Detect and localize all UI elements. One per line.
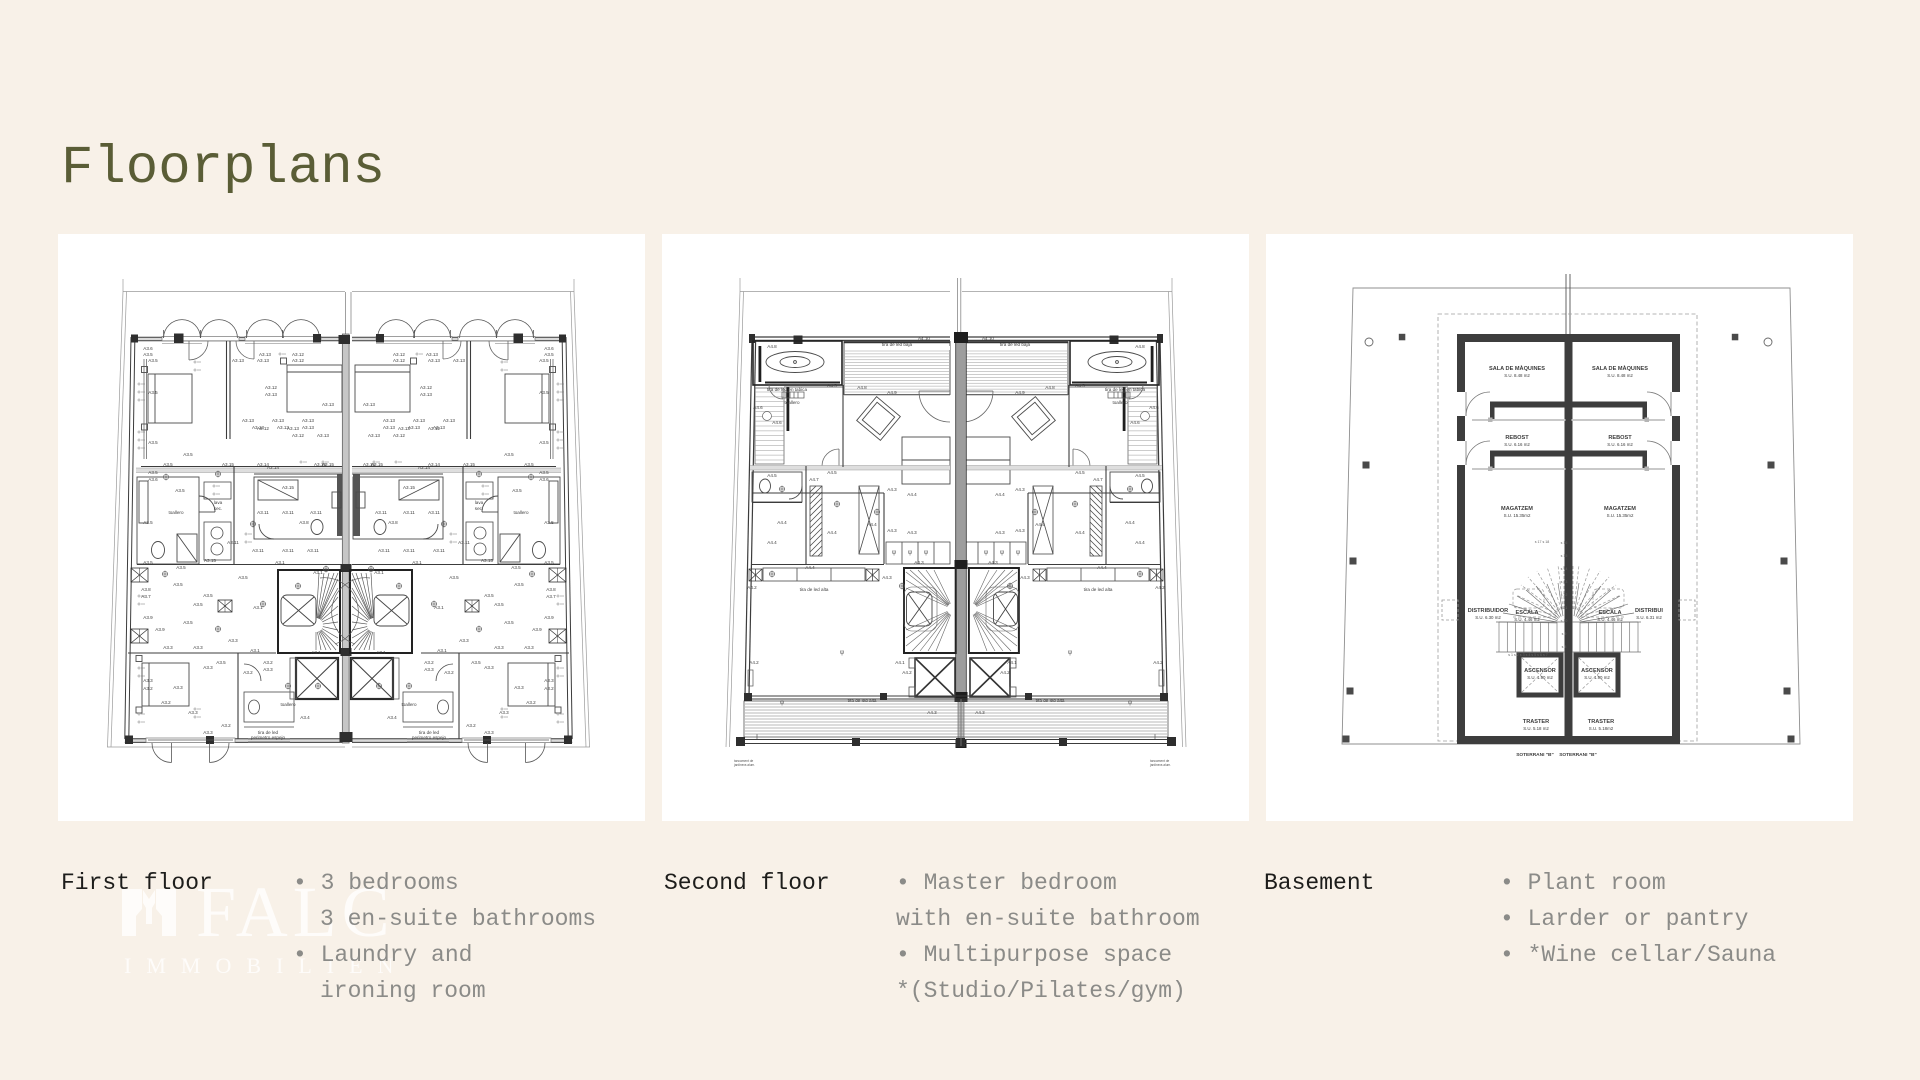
svg-text:A3.15: A3.15	[481, 558, 493, 563]
svg-text:A4.2: A4.2	[747, 585, 757, 590]
svg-text:A3.5: A3.5	[504, 452, 514, 457]
svg-text:A3.5: A3.5	[238, 575, 248, 580]
svg-text:S.U. 1.90 m2: S.U. 1.90 m2	[1584, 675, 1610, 680]
svg-text:A3.5: A3.5	[544, 560, 554, 565]
svg-text:SOTERRANI "B": SOTERRANI "B"	[1559, 752, 1597, 758]
svg-text:A3.5: A3.5	[539, 390, 549, 395]
svg-text:A3.11: A3.11	[403, 548, 415, 553]
svg-text:A3.11: A3.11	[378, 548, 390, 553]
svg-text:MAGATZEM: MAGATZEM	[1501, 506, 1533, 512]
svg-text:S.U. 4.46 m2: S.U. 4.46 m2	[1514, 617, 1540, 622]
svg-text:A3.3: A3.3	[524, 645, 534, 650]
svg-text:A3.1: A3.1	[374, 570, 384, 575]
svg-text:A3.13: A3.13	[287, 426, 299, 431]
svg-text:ψ: ψ	[780, 700, 784, 706]
svg-text:A4.3: A4.3	[975, 710, 985, 715]
svg-text:A3.7: A3.7	[141, 594, 151, 599]
svg-text:A4.4: A4.4	[777, 520, 787, 525]
svg-text:toallero: toallero	[168, 510, 184, 515]
svg-text:s 17 s 18: s 17 s 18	[1535, 540, 1550, 544]
svg-text:A3.3: A3.3	[499, 710, 509, 715]
svg-text:A3.13: A3.13	[428, 358, 440, 363]
svg-text:A3.14: A3.14	[428, 462, 440, 467]
svg-text:A4.5: A4.5	[827, 383, 837, 388]
svg-text:DISTRIBUIDOR: DISTRIBUIDOR	[1468, 608, 1508, 614]
svg-text:A3.13: A3.13	[317, 433, 329, 438]
svg-text:A3.3: A3.3	[193, 645, 203, 650]
svg-text:A3.5: A3.5	[512, 488, 522, 493]
svg-text:A3.5: A3.5	[544, 520, 554, 525]
svg-text:A3.5: A3.5	[143, 352, 153, 357]
svg-text:A3.5: A3.5	[183, 452, 193, 457]
svg-text:A3.2: A3.2	[526, 700, 536, 705]
svg-text:ESCALA: ESCALA	[1516, 610, 1539, 616]
svg-text:A4.4: A4.4	[1097, 565, 1107, 570]
svg-text:A3.13: A3.13	[232, 358, 244, 363]
svg-text:A3.2: A3.2	[544, 686, 554, 691]
svg-text:A3.8: A3.8	[299, 520, 309, 525]
svg-text:A4.1: A4.1	[1007, 660, 1017, 665]
svg-text:A3.11: A3.11	[458, 540, 470, 545]
svg-text:A3.11: A3.11	[252, 548, 264, 553]
svg-text:A3.13: A3.13	[242, 418, 254, 423]
svg-text:s 12: s 12	[1561, 593, 1568, 597]
svg-text:A3.11: A3.11	[227, 540, 239, 545]
svg-text:S.U. 6.16 m2: S.U. 6.16 m2	[1607, 442, 1633, 447]
svg-text:A3.3: A3.3	[143, 678, 153, 683]
svg-text:S.U. 8.48 m2: S.U. 8.48 m2	[1607, 373, 1633, 378]
svg-text:toallero: toallero	[1112, 400, 1128, 405]
svg-text:A4.3: A4.3	[887, 528, 897, 533]
svg-text:A4.6: A4.6	[1149, 405, 1159, 410]
svg-text:A4.4: A4.4	[867, 522, 877, 527]
svg-text:A3.2: A3.2	[243, 670, 253, 675]
svg-text:jardinera alum.: jardinera alum.	[733, 763, 755, 767]
svg-text:A3.5: A3.5	[148, 470, 158, 475]
svg-text:A3.5: A3.5	[163, 462, 173, 467]
svg-text:A3.5: A3.5	[183, 620, 193, 625]
svg-text:S.U. 15.35m2: S.U. 15.35m2	[1607, 513, 1634, 518]
svg-text:A3.15: A3.15	[314, 462, 326, 467]
svg-text:MAGATZEM: MAGATZEM	[1604, 506, 1636, 512]
svg-text:lava: lava	[475, 500, 484, 505]
svg-text:A3.11: A3.11	[403, 510, 415, 515]
svg-text:A3.11: A3.11	[282, 510, 294, 515]
svg-text:s 14: s 14	[1561, 567, 1568, 571]
svg-text:A4.4: A4.4	[1075, 530, 1085, 535]
svg-text:A3.5: A3.5	[176, 565, 186, 570]
svg-text:A3.13: A3.13	[398, 426, 410, 431]
svg-text:A3.7: A3.7	[546, 594, 556, 599]
svg-text:A3.5: A3.5	[193, 602, 203, 607]
svg-text:A3.5: A3.5	[504, 620, 514, 625]
svg-text:tira de led alta: tira de led alta	[848, 698, 877, 703]
svg-text:A4.3: A4.3	[882, 575, 892, 580]
svg-text:A3.2: A3.2	[444, 670, 454, 675]
svg-text:A3.8: A3.8	[546, 587, 556, 592]
svg-text:sec.: sec.	[475, 506, 483, 511]
svg-text:A3.12: A3.12	[292, 358, 304, 363]
svg-text:A3.1: A3.1	[253, 605, 263, 610]
svg-text:toallero: toallero	[784, 400, 800, 405]
svg-text:A3.11: A3.11	[307, 548, 319, 553]
svg-text:A4.1: A4.1	[895, 660, 905, 665]
svg-text:A3.13: A3.13	[259, 352, 271, 357]
svg-text:s 1 s 2 s 3 s 4 s 5 s 6 s 7: s 1 s 2 s 3 s 4 s 5 s 6 s 7	[1508, 653, 1548, 657]
svg-text:toallero: toallero	[280, 702, 296, 707]
svg-text:A3.5: A3.5	[216, 660, 226, 665]
svg-text:A4.2: A4.2	[1155, 585, 1165, 590]
svg-text:A3.8: A3.8	[388, 520, 398, 525]
svg-text:A4.5: A4.5	[827, 470, 837, 475]
svg-text:perimetro espejo: perimetro espejo	[412, 735, 447, 740]
svg-text:tira de led baja: tira de led baja	[1000, 342, 1031, 347]
svg-text:A3.6: A3.6	[143, 346, 153, 351]
svg-text:A4.10: A4.10	[982, 336, 994, 341]
svg-text:A3.13: A3.13	[322, 402, 334, 407]
svg-text:A3.3: A3.3	[173, 685, 183, 690]
svg-text:S.U. 5.18 m2: S.U. 5.18 m2	[1523, 726, 1549, 731]
svg-text:A3.2: A3.2	[466, 723, 476, 728]
svg-text:A3.2: A3.2	[221, 723, 231, 728]
svg-text:S.U. 6.31 m2: S.U. 6.31 m2	[1636, 615, 1662, 620]
svg-text:tira de led alta: tira de led alta	[1084, 587, 1113, 592]
svg-text:A4.9: A4.9	[1015, 390, 1025, 395]
svg-text:perimetro espejo: perimetro espejo	[251, 735, 286, 740]
svg-text:A3.5: A3.5	[524, 462, 534, 467]
svg-text:S.U. 4.46 m2: S.U. 4.46 m2	[1597, 617, 1623, 622]
svg-text:A3.5: A3.5	[484, 593, 494, 598]
svg-text:A3.13: A3.13	[302, 425, 314, 430]
svg-text:A3.15: A3.15	[282, 485, 294, 490]
svg-text:ψ: ψ	[908, 550, 912, 556]
svg-text:A4.5: A4.5	[1075, 383, 1085, 388]
svg-text:A3.15: A3.15	[463, 462, 475, 467]
svg-text:A3.15: A3.15	[222, 462, 234, 467]
svg-text:A3.5: A3.5	[203, 593, 213, 598]
svg-text:A3.3: A3.3	[514, 685, 524, 690]
svg-text:A4.4: A4.4	[767, 540, 777, 545]
svg-text:SOTERRANI "B": SOTERRANI "B"	[1516, 752, 1554, 758]
svg-text:A4.4: A4.4	[907, 492, 917, 497]
svg-text:tira de led en tabica: tira de led en tabica	[1105, 387, 1146, 392]
svg-text:A4.4: A4.4	[827, 530, 837, 535]
svg-text:A3.13: A3.13	[272, 418, 284, 423]
svg-text:A4.8: A4.8	[1135, 344, 1145, 349]
svg-text:A3.1: A3.1	[412, 560, 422, 565]
svg-text:tira de led alta: tira de led alta	[800, 587, 829, 592]
svg-text:A3.11: A3.11	[257, 510, 269, 515]
svg-text:A4.2: A4.2	[1153, 660, 1163, 665]
svg-text:A4.7: A4.7	[809, 477, 819, 482]
svg-text:A3.5: A3.5	[148, 390, 158, 395]
svg-text:A3.8: A3.8	[141, 587, 151, 592]
svg-text:A3.2: A3.2	[143, 686, 153, 691]
svg-text:ψ: ψ	[1068, 650, 1072, 656]
svg-text:A3.13: A3.13	[383, 425, 395, 430]
svg-text:A3.11: A3.11	[428, 510, 440, 515]
svg-text:A3.1: A3.1	[275, 560, 285, 565]
svg-text:A3.13: A3.13	[420, 392, 432, 397]
svg-text:ASCENSOR: ASCENSOR	[1524, 668, 1556, 674]
svg-text:A4.2: A4.2	[1000, 670, 1010, 675]
svg-text:A3.1: A3.1	[313, 570, 323, 575]
svg-text:A3.11: A3.11	[375, 510, 387, 515]
svg-text:s 10: s 10	[1561, 619, 1568, 623]
svg-text:TRASTER: TRASTER	[1523, 719, 1549, 725]
svg-text:REBOST: REBOST	[1608, 435, 1632, 441]
svg-text:A3.5: A3.5	[511, 565, 521, 570]
svg-text:A3.13: A3.13	[368, 433, 380, 438]
svg-text:A3.1: A3.1	[376, 650, 386, 655]
svg-text:s 9: s 9	[1562, 632, 1567, 636]
svg-text:A3.3: A3.3	[163, 645, 173, 650]
svg-text:A3.12: A3.12	[393, 358, 405, 363]
svg-text:A4.3: A4.3	[1015, 528, 1025, 533]
svg-text:A4.4: A4.4	[1035, 522, 1045, 527]
svg-text:SALA DE MÀQUINES: SALA DE MÀQUINES	[1592, 365, 1648, 372]
svg-text:A3.11: A3.11	[310, 510, 322, 515]
svg-text:A3.12: A3.12	[292, 352, 304, 357]
svg-text:A3.13: A3.13	[383, 418, 395, 423]
svg-text:A4.6: A4.6	[772, 420, 782, 425]
svg-text:A3.5: A3.5	[494, 602, 504, 607]
svg-text:REBOST: REBOST	[1505, 435, 1529, 441]
svg-text:A4.3: A4.3	[887, 487, 897, 492]
svg-text:A3.3: A3.3	[424, 667, 434, 672]
svg-text:A3.5: A3.5	[148, 358, 158, 363]
svg-text:A3.5: A3.5	[173, 582, 183, 587]
svg-text:A3.5: A3.5	[175, 488, 185, 493]
svg-text:A3.13: A3.13	[426, 352, 438, 357]
svg-text:A4.2: A4.2	[902, 670, 912, 675]
svg-text:A3.13: A3.13	[302, 418, 314, 423]
svg-text:A3.5: A3.5	[148, 440, 158, 445]
svg-text:A3.6: A3.6	[544, 346, 554, 351]
svg-text:A3.15: A3.15	[403, 485, 415, 490]
svg-text:A3.14: A3.14	[257, 462, 269, 467]
svg-text:A3.13: A3.13	[453, 358, 465, 363]
svg-text:A3.11: A3.11	[433, 548, 445, 553]
svg-text:A3.3: A3.3	[494, 645, 504, 650]
svg-text:A3.3: A3.3	[484, 665, 494, 670]
svg-text:A3.9: A3.9	[544, 615, 554, 620]
svg-text:ψ: ψ	[840, 650, 844, 656]
svg-text:A4.3: A4.3	[988, 560, 998, 565]
svg-text:tira de led en tabica: tira de led en tabica	[767, 387, 808, 392]
svg-text:A3.3: A3.3	[188, 710, 198, 715]
svg-text:ESCALA: ESCALA	[1599, 610, 1622, 616]
svg-text:ψ: ψ	[1016, 550, 1020, 556]
svg-text:A3.1: A3.1	[437, 648, 447, 653]
svg-text:s 15: s 15	[1561, 554, 1568, 558]
svg-text:toallero: toallero	[401, 702, 417, 707]
svg-text:A3.6: A3.6	[148, 477, 158, 482]
svg-text:s 13: s 13	[1561, 580, 1568, 584]
svg-text:tira de led alta: tira de led alta	[1036, 698, 1065, 703]
svg-text:A3.4: A3.4	[387, 715, 397, 720]
svg-text:A3.5: A3.5	[449, 575, 459, 580]
svg-text:A4.5: A4.5	[1075, 470, 1085, 475]
svg-text:S.U. 6.16 m2: S.U. 6.16 m2	[1504, 442, 1530, 447]
svg-text:A3.1: A3.1	[250, 648, 260, 653]
svg-text:A3.1: A3.1	[311, 650, 321, 655]
svg-text:ASCENSOR: ASCENSOR	[1581, 668, 1613, 674]
svg-text:A3.2: A3.2	[161, 700, 171, 705]
svg-text:A3.13: A3.13	[363, 402, 375, 407]
svg-text:A3.3: A3.3	[263, 667, 273, 672]
svg-text:A3.5: A3.5	[143, 520, 153, 525]
svg-text:A3.5: A3.5	[544, 352, 554, 357]
svg-text:s 16: s 16	[1561, 541, 1568, 545]
svg-text:A3.4: A3.4	[300, 715, 310, 720]
svg-text:A3.3: A3.3	[544, 678, 554, 683]
svg-text:s 11: s 11	[1561, 606, 1568, 610]
svg-text:A3.12: A3.12	[393, 433, 405, 438]
svg-text:A4.3: A4.3	[914, 560, 924, 565]
svg-text:A3.12: A3.12	[420, 385, 432, 390]
svg-text:ψ: ψ	[1000, 550, 1004, 556]
svg-text:jardinera alum.: jardinera alum.	[1149, 763, 1171, 767]
svg-text:A3.5: A3.5	[471, 660, 481, 665]
svg-text:A4.5: A4.5	[1135, 473, 1145, 478]
svg-text:S.U. 8.48 m2: S.U. 8.48 m2	[1504, 373, 1530, 378]
svg-text:A4.9: A4.9	[887, 390, 897, 395]
svg-text:A3.9: A3.9	[143, 615, 153, 620]
svg-text:S.U. 1.90 m2: S.U. 1.90 m2	[1527, 675, 1553, 680]
svg-text:A3.12: A3.12	[265, 385, 277, 390]
svg-text:A3.12: A3.12	[257, 426, 269, 431]
svg-text:TRASTER: TRASTER	[1588, 719, 1614, 725]
svg-text:tira de led baja: tira de led baja	[882, 342, 913, 347]
svg-text:sec.: sec.	[214, 506, 222, 511]
svg-text:A4.8: A4.8	[767, 344, 777, 349]
svg-text:A3.3: A3.3	[459, 638, 469, 643]
svg-text:A3.6: A3.6	[539, 477, 549, 482]
svg-text:S.U. 5.18m2: S.U. 5.18m2	[1589, 726, 1614, 731]
svg-text:A3.2: A3.2	[263, 660, 273, 665]
svg-text:A3.11: A3.11	[282, 548, 294, 553]
svg-text:A3.5: A3.5	[539, 440, 549, 445]
svg-text:A4.3: A4.3	[927, 710, 937, 715]
svg-text:A4.3: A4.3	[1020, 575, 1030, 580]
svg-text:A3.5: A3.5	[539, 358, 549, 363]
svg-text:toallero: toallero	[513, 510, 529, 515]
svg-text:A3.2: A3.2	[424, 660, 434, 665]
svg-text:A4.3: A4.3	[1015, 487, 1025, 492]
svg-text:S.U. 15.35m2: S.U. 15.35m2	[1504, 513, 1531, 518]
svg-text:A3.3: A3.3	[203, 730, 213, 735]
svg-text:A3.12: A3.12	[428, 426, 440, 431]
svg-text:A4.4: A4.4	[1125, 520, 1135, 525]
svg-text:A4.8: A4.8	[1045, 385, 1055, 390]
svg-text:A3.13: A3.13	[413, 418, 425, 423]
svg-text:A3.9: A3.9	[155, 627, 165, 632]
svg-text:A3.3: A3.3	[203, 665, 213, 670]
svg-text:A3.9: A3.9	[532, 627, 542, 632]
svg-text:A4.4: A4.4	[1135, 540, 1145, 545]
svg-text:A3.15: A3.15	[204, 558, 216, 563]
svg-text:A4.8: A4.8	[857, 385, 867, 390]
svg-text:S.U. 6.30 m2: S.U. 6.30 m2	[1475, 615, 1501, 620]
svg-text:A3.5: A3.5	[514, 582, 524, 587]
svg-text:A3.3: A3.3	[484, 730, 494, 735]
svg-text:A3.15: A3.15	[371, 462, 383, 467]
svg-text:SALA DE MÀQUINES: SALA DE MÀQUINES	[1489, 365, 1545, 372]
svg-text:A4.3: A4.3	[907, 530, 917, 535]
svg-text:lava: lava	[214, 500, 223, 505]
svg-text:A4.2: A4.2	[749, 660, 759, 665]
svg-text:A4.6: A4.6	[1130, 420, 1140, 425]
svg-text:A4.4: A4.4	[995, 492, 1005, 497]
svg-text:A3.13: A3.13	[265, 392, 277, 397]
svg-text:A4.7: A4.7	[1093, 477, 1103, 482]
svg-text:ψ: ψ	[924, 550, 928, 556]
svg-text:A3.13: A3.13	[257, 358, 269, 363]
svg-text:A3.12: A3.12	[393, 352, 405, 357]
svg-text:A3.5: A3.5	[143, 560, 153, 565]
svg-text:A4.3: A4.3	[995, 530, 1005, 535]
svg-text:ψ: ψ	[984, 550, 988, 556]
svg-text:A4.10: A4.10	[918, 336, 930, 341]
svg-text:A4.6: A4.6	[753, 405, 763, 410]
svg-text:A3.5: A3.5	[539, 470, 549, 475]
svg-text:A4.5: A4.5	[767, 473, 777, 478]
svg-text:s 8: s 8	[1562, 645, 1567, 649]
svg-text:A3.3: A3.3	[228, 638, 238, 643]
svg-text:A3.13: A3.13	[443, 418, 455, 423]
svg-text:A4.4: A4.4	[805, 565, 815, 570]
svg-text:A3.12: A3.12	[292, 433, 304, 438]
svg-text:DISTRIBUI: DISTRIBUI	[1635, 608, 1663, 614]
svg-text:ψ: ψ	[892, 550, 896, 556]
svg-text:ψ: ψ	[1128, 700, 1132, 706]
